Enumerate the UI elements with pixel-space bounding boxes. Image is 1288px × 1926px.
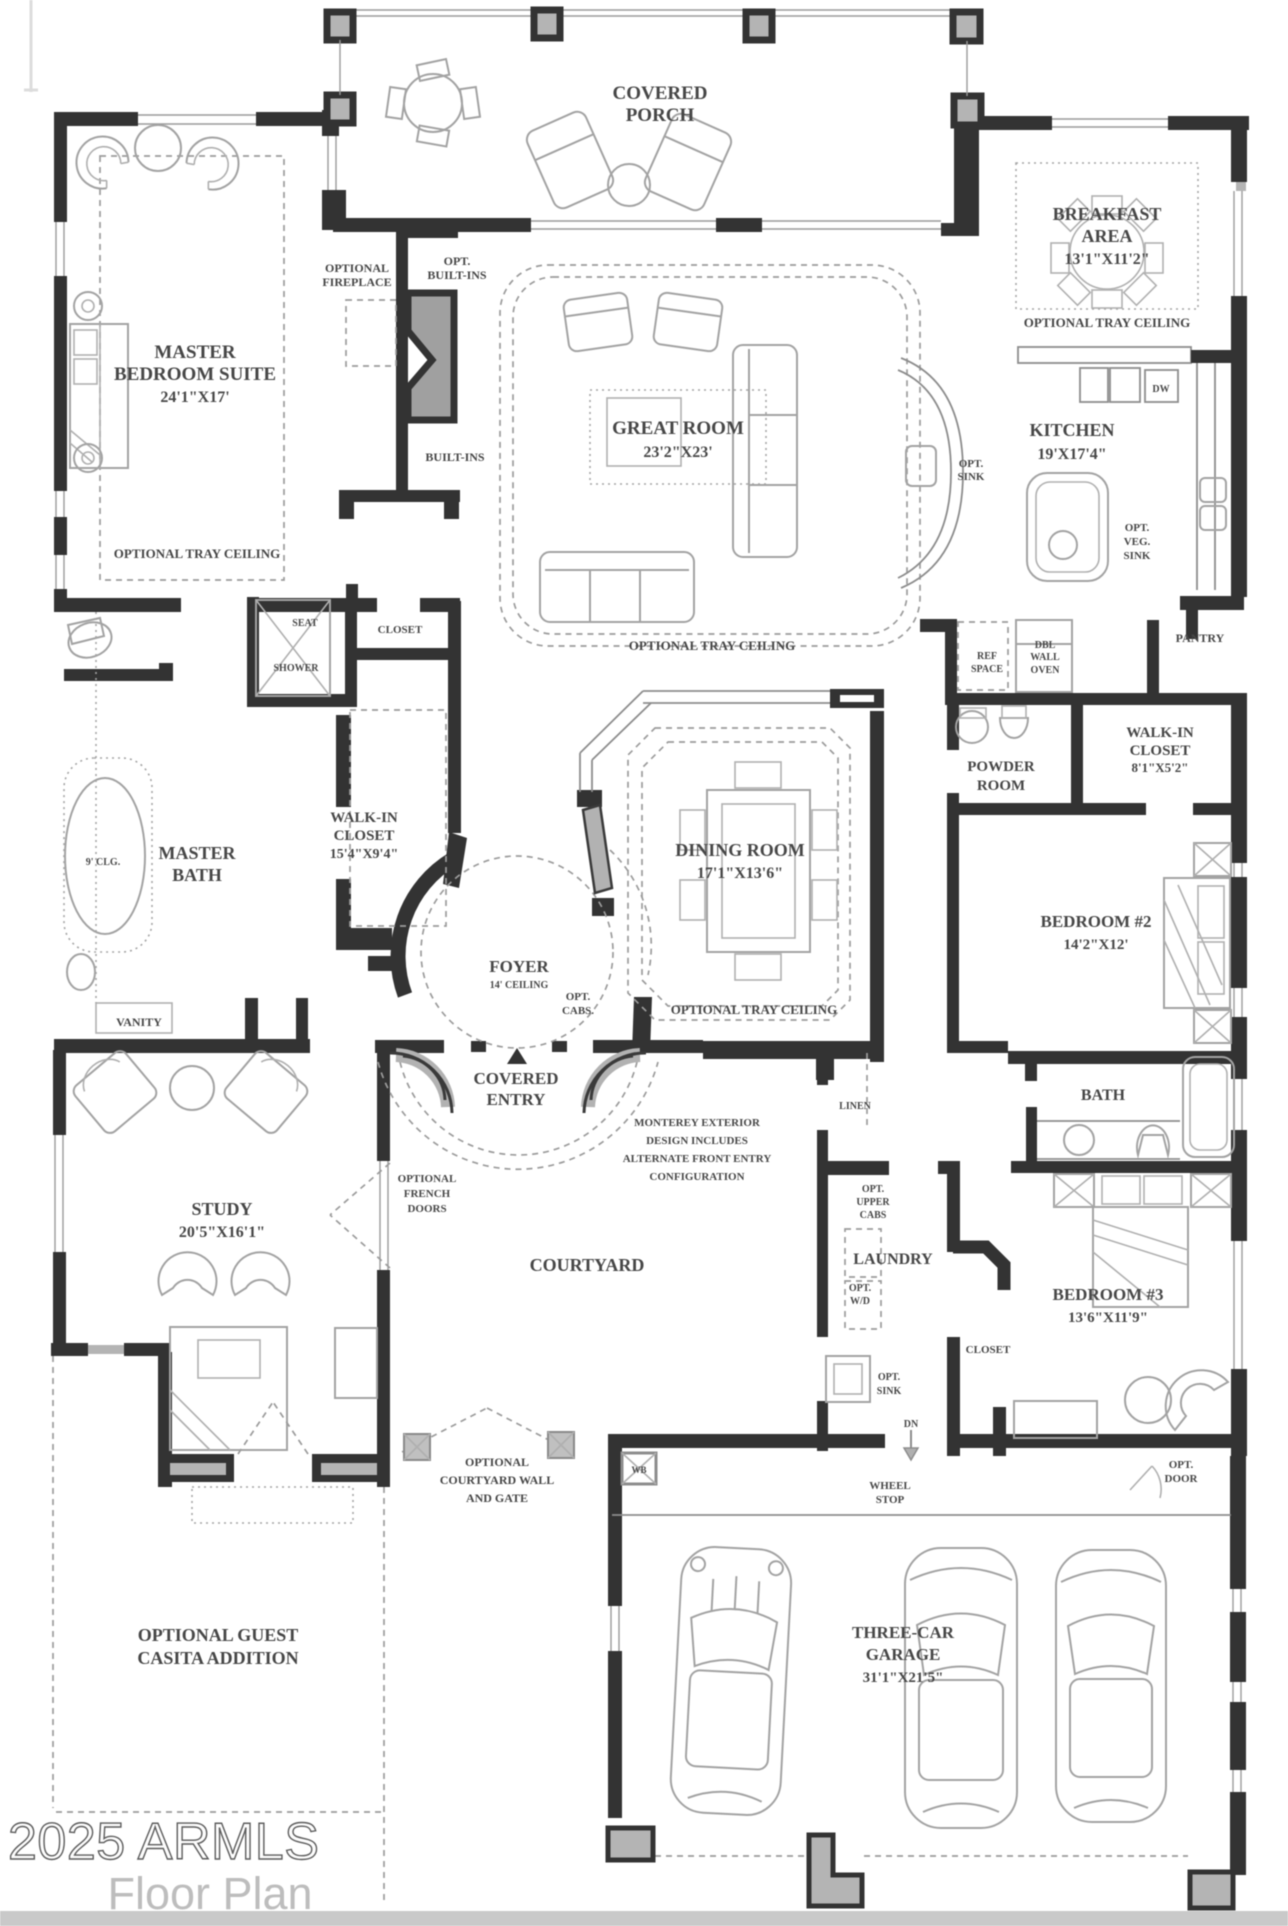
svg-text:COURTYARD: COURTYARD	[530, 1255, 645, 1275]
svg-text:OPT.: OPT.	[1125, 522, 1150, 534]
svg-text:VEG.: VEG.	[1124, 536, 1151, 548]
svg-text:UPPER: UPPER	[856, 1197, 890, 1208]
svg-text:17'1"X13'6": 17'1"X13'6"	[697, 865, 783, 882]
svg-text:GARAGE: GARAGE	[866, 1645, 941, 1664]
svg-text:Floor Plan: Floor Plan	[107, 1868, 312, 1919]
svg-text:DBL: DBL	[1035, 640, 1056, 651]
svg-text:OPT.: OPT.	[1169, 1459, 1194, 1471]
svg-text:WALK-IN: WALK-IN	[1126, 725, 1194, 741]
svg-text:WB: WB	[631, 1465, 646, 1475]
svg-text:PANTRY: PANTRY	[1176, 631, 1225, 645]
svg-text:CONFIGURATION: CONFIGURATION	[649, 1171, 744, 1183]
svg-text:SEAT: SEAT	[292, 618, 318, 629]
svg-text:ALTERNATE FRONT ENTRY: ALTERNATE FRONT ENTRY	[623, 1153, 772, 1165]
svg-text:BREAKFAST: BREAKFAST	[1053, 204, 1162, 224]
svg-text:SPACE: SPACE	[971, 664, 1003, 675]
svg-text:SHOWER: SHOWER	[273, 663, 319, 674]
svg-text:WHEEL: WHEEL	[869, 1480, 911, 1492]
svg-text:ENTRY: ENTRY	[487, 1090, 546, 1109]
svg-text:20'5"X16'1": 20'5"X16'1"	[179, 1224, 265, 1241]
svg-text:WALL: WALL	[1030, 652, 1060, 663]
svg-text:OPTIONAL TRAY CEILING: OPTIONAL TRAY CEILING	[114, 546, 280, 561]
svg-text:9' CLG.: 9' CLG.	[86, 857, 121, 868]
svg-text:AND GATE: AND GATE	[466, 1491, 528, 1505]
svg-text:MONTEREY EXTERIOR: MONTEREY EXTERIOR	[634, 1117, 761, 1129]
svg-text:LINEN: LINEN	[839, 1101, 871, 1112]
svg-text:AREA: AREA	[1081, 226, 1132, 246]
svg-text:DOOR: DOOR	[1165, 1473, 1199, 1485]
svg-text:BUILT-INS: BUILT-INS	[427, 268, 486, 282]
svg-text:2025 ARMLS: 2025 ARMLS	[8, 1813, 319, 1871]
svg-text:23'2"X23': 23'2"X23'	[643, 444, 712, 461]
svg-text:OPT.: OPT.	[878, 1372, 901, 1383]
svg-text:BEDROOM SUITE: BEDROOM SUITE	[114, 364, 276, 385]
svg-text:COVERED: COVERED	[612, 83, 707, 104]
svg-text:OPTIONAL TRAY CEILING: OPTIONAL TRAY CEILING	[629, 638, 795, 653]
svg-text:STUDY: STUDY	[191, 1199, 252, 1219]
svg-text:POWDER: POWDER	[967, 759, 1035, 775]
svg-text:COVERED: COVERED	[473, 1069, 558, 1088]
svg-text:DW: DW	[1152, 384, 1169, 395]
svg-text:DINING ROOM: DINING ROOM	[675, 840, 805, 860]
svg-text:13'6"X11'9": 13'6"X11'9"	[1068, 1310, 1148, 1326]
svg-text:LAUNDRY: LAUNDRY	[853, 1251, 933, 1268]
svg-text:CLOSET: CLOSET	[1130, 743, 1191, 759]
svg-text:FIREPLACE: FIREPLACE	[322, 275, 391, 289]
svg-text:31'1"X21'5": 31'1"X21'5"	[863, 1670, 944, 1686]
svg-text:GREAT ROOM: GREAT ROOM	[612, 418, 744, 439]
svg-text:14'2"X12': 14'2"X12'	[1064, 937, 1129, 953]
svg-text:KITCHEN: KITCHEN	[1029, 420, 1114, 440]
svg-text:OPT.: OPT.	[849, 1283, 872, 1294]
svg-text:CLOSET: CLOSET	[334, 828, 395, 844]
svg-text:24'1"X17': 24'1"X17'	[160, 389, 229, 406]
svg-text:SINK: SINK	[877, 1386, 902, 1397]
svg-text:CLOSET: CLOSET	[378, 624, 423, 636]
svg-text:SINK: SINK	[958, 471, 985, 483]
svg-text:BEDROOM #2: BEDROOM #2	[1041, 912, 1152, 931]
svg-text:OPTIONAL TRAY CEILING: OPTIONAL TRAY CEILING	[1024, 315, 1190, 330]
svg-text:CASITA ADDITION: CASITA ADDITION	[137, 1648, 298, 1668]
svg-text:CLOSET: CLOSET	[966, 1344, 1011, 1356]
svg-text:MASTER: MASTER	[154, 342, 236, 363]
svg-text:PORCH: PORCH	[626, 105, 695, 126]
svg-text:OPTIONAL: OPTIONAL	[465, 1455, 529, 1469]
svg-text:THREE-CAR: THREE-CAR	[852, 1623, 955, 1642]
svg-text:BEDROOM #3: BEDROOM #3	[1053, 1285, 1164, 1304]
svg-text:OPT.: OPT.	[862, 1184, 885, 1195]
svg-text:OVEN: OVEN	[1031, 665, 1061, 676]
svg-text:W/D: W/D	[850, 1296, 870, 1307]
svg-text:8'1"X5'2": 8'1"X5'2"	[1131, 760, 1188, 775]
svg-text:13'1"X11'2": 13'1"X11'2"	[1064, 251, 1149, 268]
svg-text:OPT.: OPT.	[566, 991, 591, 1003]
svg-text:BUILT-INS: BUILT-INS	[425, 450, 484, 464]
svg-text:DESIGN INCLUDES: DESIGN INCLUDES	[646, 1135, 748, 1147]
svg-text:ROOM: ROOM	[977, 778, 1025, 794]
svg-text:COURTYARD WALL: COURTYARD WALL	[440, 1473, 555, 1487]
svg-text:WALK-IN: WALK-IN	[330, 810, 398, 826]
svg-text:CABS: CABS	[860, 1210, 887, 1221]
svg-text:REF: REF	[977, 651, 997, 662]
svg-text:DOORS: DOORS	[407, 1203, 446, 1215]
svg-text:SINK: SINK	[1124, 550, 1151, 562]
svg-text:VANITY: VANITY	[116, 1015, 162, 1029]
svg-text:BATH: BATH	[1081, 1087, 1126, 1104]
svg-text:OPTIONAL: OPTIONAL	[398, 1173, 457, 1185]
svg-text:15'4"X9'4": 15'4"X9'4"	[330, 847, 398, 862]
svg-text:FOYER: FOYER	[489, 957, 549, 976]
svg-text:OPTIONAL GUEST: OPTIONAL GUEST	[138, 1625, 299, 1645]
svg-text:OPT.: OPT.	[444, 254, 471, 268]
svg-text:14' CEILING: 14' CEILING	[490, 980, 549, 991]
svg-text:OPTIONAL TRAY CEILING: OPTIONAL TRAY CEILING	[671, 1002, 837, 1017]
svg-text:STOP: STOP	[876, 1494, 905, 1506]
svg-text:MASTER: MASTER	[158, 843, 236, 863]
svg-text:DN: DN	[904, 1419, 919, 1430]
svg-text:OPTIONAL: OPTIONAL	[325, 261, 389, 275]
svg-text:BATH: BATH	[172, 865, 222, 885]
svg-text:OPT.: OPT.	[959, 458, 984, 470]
svg-text:CABS.: CABS.	[562, 1005, 594, 1017]
svg-text:19'X17'4": 19'X17'4"	[1037, 446, 1106, 463]
svg-text:FRENCH: FRENCH	[404, 1188, 451, 1200]
